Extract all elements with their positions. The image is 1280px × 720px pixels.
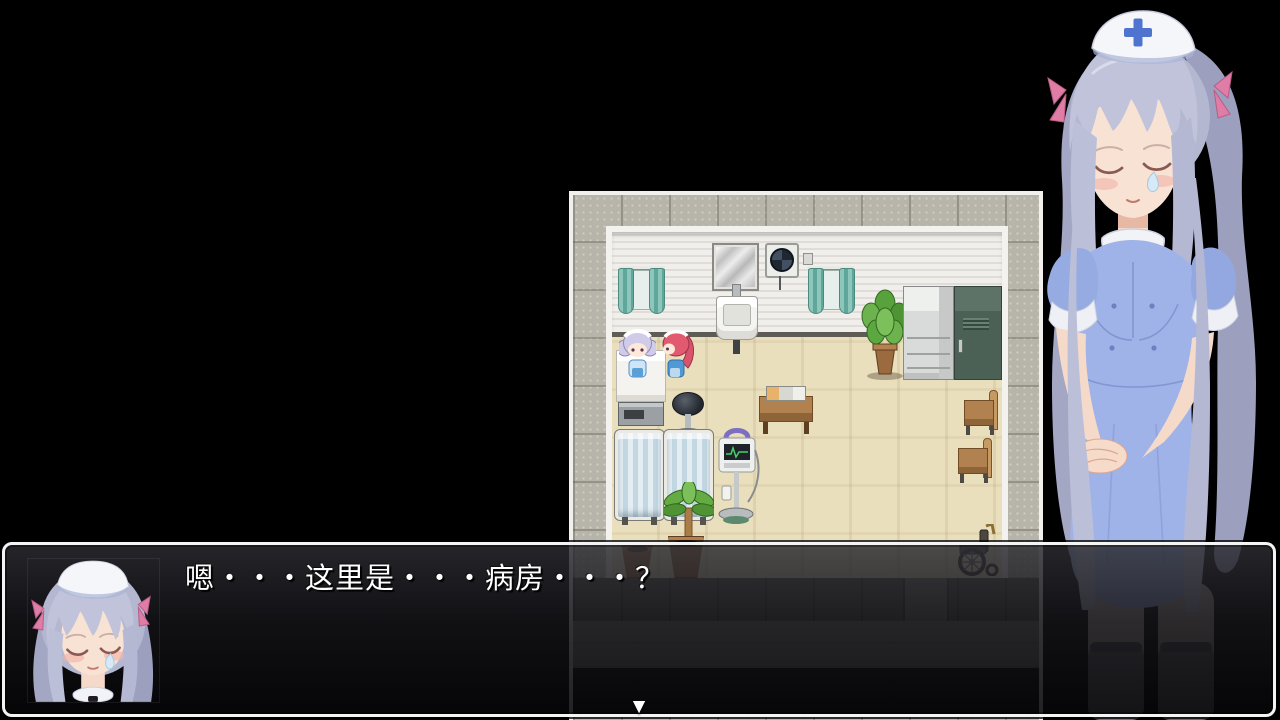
curtain-left bbox=[808, 268, 824, 314]
screen-foot bbox=[651, 517, 657, 525]
sink-icon bbox=[716, 284, 758, 356]
window-curtains-right-icon bbox=[808, 266, 855, 318]
bowl bbox=[723, 304, 751, 326]
food-tray bbox=[766, 386, 806, 401]
bed-base-slot bbox=[624, 410, 644, 419]
chair-seat bbox=[958, 448, 988, 474]
curtain-left bbox=[618, 268, 634, 314]
fan-plug bbox=[803, 253, 813, 265]
fridge-panel-line bbox=[907, 353, 950, 355]
fan-blades bbox=[770, 248, 794, 272]
medical-monitor-icon bbox=[714, 428, 762, 532]
stool-pedestal bbox=[685, 414, 691, 428]
fridge-panel-line bbox=[907, 367, 950, 369]
window-curtains-left-icon bbox=[618, 266, 665, 318]
meal-table-icon bbox=[759, 386, 813, 434]
continue-indicator-icon[interactable]: ▼ bbox=[629, 696, 650, 717]
fridge-panel-line bbox=[907, 337, 950, 339]
table-leg bbox=[763, 422, 768, 434]
nurse-cap bbox=[1092, 11, 1195, 64]
ward-room bbox=[606, 226, 1008, 580]
exhaust-fan-icon bbox=[765, 243, 799, 278]
dialogue-text: 嗯・・・这里是・・・病房・・・？ bbox=[185, 561, 1235, 597]
fan-cord bbox=[779, 276, 781, 290]
hair-ribbon-left bbox=[1048, 78, 1066, 122]
chair-upper-icon bbox=[962, 390, 1000, 436]
privacy-screen-left-icon bbox=[615, 430, 664, 520]
table-leg bbox=[804, 422, 809, 434]
dialogue-window[interactable]: 嗯・・・这里是・・・病房・・・？ ▼ bbox=[2, 542, 1276, 717]
chair-seat bbox=[964, 400, 994, 426]
maid-silver-sprite bbox=[619, 324, 656, 384]
locker-handle bbox=[958, 339, 963, 353]
curtain-right bbox=[839, 268, 855, 314]
drain-pipe bbox=[733, 340, 740, 354]
game-screen: 嗯・・・这里是・・・病房・・・？ ▼ bbox=[0, 0, 1280, 720]
chair-legs bbox=[960, 474, 988, 483]
screen-foot bbox=[622, 517, 628, 525]
refrigerator-icon bbox=[903, 286, 954, 380]
locker-vents bbox=[963, 318, 989, 330]
locker-icon bbox=[954, 286, 1002, 380]
maid-pink-sprite bbox=[658, 324, 698, 384]
curtain-right bbox=[649, 268, 665, 314]
chair-legs bbox=[966, 426, 994, 435]
stool-seat bbox=[672, 392, 704, 416]
chair-lower-icon bbox=[956, 438, 994, 484]
nurse-portrait bbox=[27, 558, 160, 703]
